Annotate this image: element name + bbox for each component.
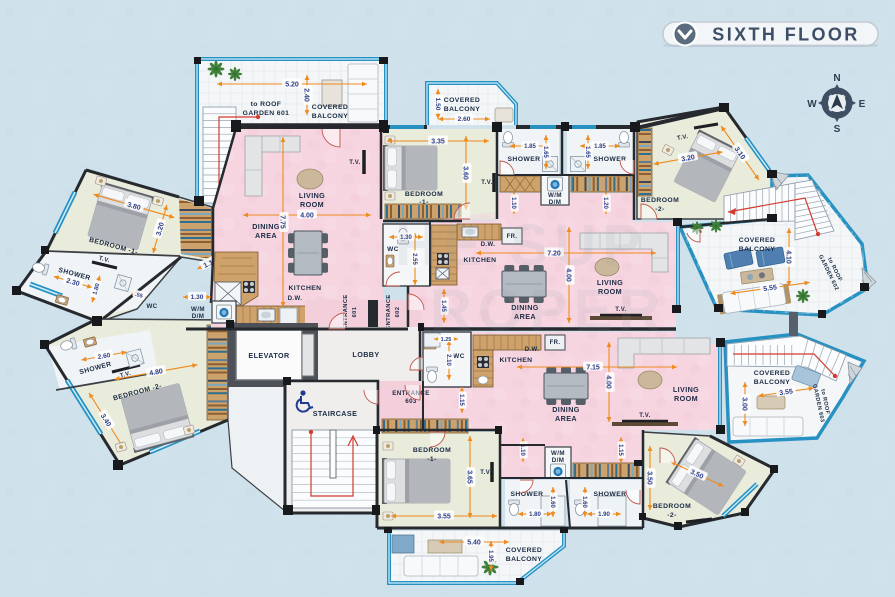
svg-text:7.75: 7.75 bbox=[279, 215, 286, 229]
svg-text:D/M: D/M bbox=[549, 199, 562, 206]
svg-text:AREA: AREA bbox=[555, 414, 577, 423]
svg-text:N: N bbox=[833, 73, 840, 84]
svg-text:COVERED: COVERED bbox=[506, 547, 542, 554]
svg-text:COVERED: COVERED bbox=[754, 370, 790, 377]
svg-text:-2-: -2- bbox=[655, 206, 665, 213]
svg-text:KITCHEN: KITCHEN bbox=[288, 285, 321, 292]
svg-text:to ROOF: to ROOF bbox=[251, 101, 282, 108]
svg-text:5.20: 5.20 bbox=[285, 81, 299, 88]
svg-text:1.60: 1.60 bbox=[581, 496, 587, 508]
svg-text:AREA: AREA bbox=[255, 231, 277, 240]
svg-text:STAIRCASE: STAIRCASE bbox=[313, 409, 358, 418]
svg-text:-2-: -2- bbox=[667, 512, 677, 519]
svg-text:4.00: 4.00 bbox=[605, 375, 612, 389]
svg-text:ROOM: ROOM bbox=[674, 394, 698, 403]
svg-text:ROPER: ROPER bbox=[430, 278, 666, 343]
svg-text:HE SUP: HE SUP bbox=[395, 213, 647, 278]
svg-text:3.00: 3.00 bbox=[741, 397, 748, 411]
svg-text:COVERED: COVERED bbox=[312, 104, 348, 111]
svg-text:4.00: 4.00 bbox=[300, 212, 314, 219]
svg-text:5.40: 5.40 bbox=[467, 539, 481, 546]
svg-text:GARDEN 601: GARDEN 601 bbox=[243, 110, 290, 117]
svg-text:D/M: D/M bbox=[192, 313, 205, 320]
svg-text:1.30: 1.30 bbox=[191, 294, 204, 301]
svg-text:BEDROOM: BEDROOM bbox=[641, 197, 679, 204]
svg-text:SHOWER: SHOWER bbox=[508, 156, 541, 163]
svg-text:SIXTH FLOOR: SIXTH FLOOR bbox=[712, 25, 859, 45]
svg-text:W/M: W/M bbox=[548, 192, 562, 199]
svg-text:ROOM: ROOM bbox=[300, 200, 324, 209]
svg-text:W/M: W/M bbox=[191, 306, 205, 313]
svg-text:BALCONY: BALCONY bbox=[312, 113, 348, 120]
svg-text:T.V.: T.V. bbox=[349, 160, 360, 166]
svg-text:3.50: 3.50 bbox=[646, 471, 653, 485]
svg-text:4.10: 4.10 bbox=[785, 250, 792, 264]
svg-text:LIVING: LIVING bbox=[673, 385, 699, 394]
svg-text:1.60: 1.60 bbox=[549, 496, 555, 508]
svg-text:1.90: 1.90 bbox=[598, 512, 610, 518]
svg-text:7.15: 7.15 bbox=[586, 364, 600, 371]
svg-text:COVERED: COVERED bbox=[444, 97, 480, 104]
svg-text:BALCONY: BALCONY bbox=[506, 556, 542, 563]
svg-text:1.10: 1.10 bbox=[519, 444, 525, 456]
svg-text:W: W bbox=[807, 99, 817, 110]
svg-text:W/M: W/M bbox=[551, 450, 565, 457]
svg-text:WC: WC bbox=[453, 353, 465, 360]
svg-text:1.65: 1.65 bbox=[584, 146, 590, 158]
svg-text:2.10: 2.10 bbox=[445, 354, 451, 366]
svg-text:DINING: DINING bbox=[252, 222, 280, 231]
svg-text:T.V.: T.V. bbox=[639, 413, 650, 419]
svg-text:1.85: 1.85 bbox=[524, 144, 536, 150]
svg-text:1.65: 1.65 bbox=[542, 146, 548, 158]
svg-text:1.80: 1.80 bbox=[529, 512, 541, 518]
svg-text:-1-: -1- bbox=[427, 456, 437, 463]
svg-text:1.10: 1.10 bbox=[510, 197, 516, 209]
svg-text:1.95: 1.95 bbox=[487, 550, 493, 562]
svg-text:1.85: 1.85 bbox=[594, 144, 606, 150]
svg-text:SHOWER: SHOWER bbox=[511, 491, 544, 498]
svg-text:BEDROOM: BEDROOM bbox=[413, 447, 451, 454]
svg-text:1.15: 1.15 bbox=[458, 394, 464, 406]
svg-text:S: S bbox=[834, 124, 841, 135]
svg-text:COVERED: COVERED bbox=[739, 237, 775, 244]
svg-text:LIVING: LIVING bbox=[299, 191, 325, 200]
svg-text:ELEVATOR: ELEVATOR bbox=[248, 351, 290, 360]
svg-text:BALCONY: BALCONY bbox=[444, 106, 480, 113]
svg-text:WC: WC bbox=[146, 303, 157, 310]
svg-text:1.20: 1.20 bbox=[602, 197, 608, 209]
svg-text:3.65: 3.65 bbox=[466, 470, 473, 484]
svg-text:KITCHEN: KITCHEN bbox=[499, 357, 532, 364]
svg-text:T.V.: T.V. bbox=[481, 180, 492, 186]
svg-text:D.W.: D.W. bbox=[288, 296, 303, 302]
svg-text:E: E bbox=[859, 99, 866, 110]
svg-text:601: 601 bbox=[352, 306, 358, 317]
svg-text:3.60: 3.60 bbox=[462, 166, 469, 180]
svg-text:LOBBY: LOBBY bbox=[352, 350, 379, 359]
svg-text:1.50: 1.50 bbox=[434, 98, 441, 111]
svg-text:DINING: DINING bbox=[552, 405, 580, 414]
svg-text:BEDROOM: BEDROOM bbox=[653, 503, 691, 510]
svg-text:BALCONY: BALCONY bbox=[739, 246, 775, 253]
svg-text:1.15: 1.15 bbox=[617, 444, 623, 456]
svg-text:3.35: 3.35 bbox=[431, 138, 445, 145]
svg-text:3.55: 3.55 bbox=[437, 513, 451, 520]
svg-text:2.60: 2.60 bbox=[458, 116, 471, 123]
svg-text:D.W.: D.W. bbox=[525, 347, 540, 353]
svg-text:-1-: -1- bbox=[419, 199, 429, 206]
svg-text:SHOWER: SHOWER bbox=[594, 491, 627, 498]
svg-text:D/M: D/M bbox=[552, 457, 565, 464]
svg-text:ENTRANCE: ENTRANCE bbox=[386, 294, 392, 329]
svg-text:BEDROOM: BEDROOM bbox=[405, 191, 443, 198]
svg-text:602: 602 bbox=[395, 307, 401, 318]
svg-text:BALCONY: BALCONY bbox=[754, 379, 790, 386]
svg-text:T.V.: T.V. bbox=[480, 470, 491, 476]
svg-text:2.40: 2.40 bbox=[303, 88, 310, 102]
